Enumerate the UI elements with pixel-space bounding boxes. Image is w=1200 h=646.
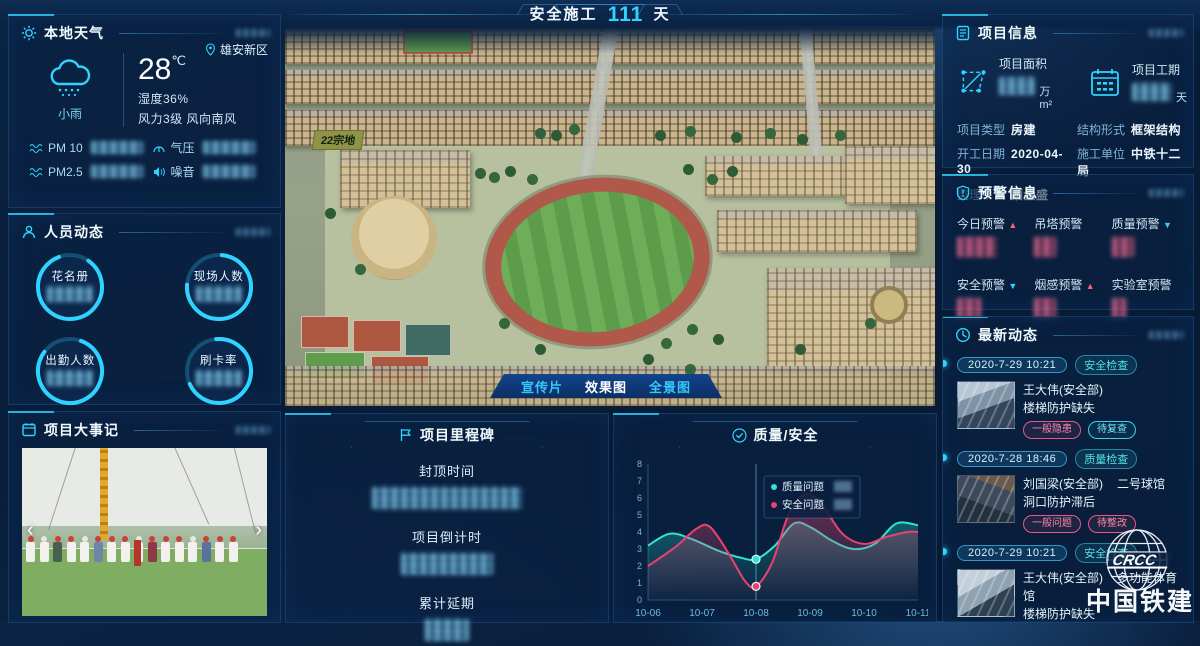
svg-text:10-09: 10-09 <box>797 608 823 619</box>
weather-panel: 本地天气 雄安新区 小雨 28℃ 湿度36% 风力3级 风向南风 PM 10 <box>8 14 281 208</box>
field-structure-type: 结构形式框架结构 <box>1077 121 1187 138</box>
update-date: 2020-7-29 10:21 <box>957 545 1067 561</box>
view-button-render[interactable]: 效果图 <box>585 377 627 396</box>
photo-calendar-icon <box>21 422 37 438</box>
tag-hazard: 一般隐患 <box>1023 421 1081 439</box>
blurred-value <box>47 286 93 302</box>
update-person: 王大伟(安全部) <box>1023 383 1103 397</box>
svg-text:10-10: 10-10 <box>851 608 877 619</box>
svg-text:5: 5 <box>637 510 642 520</box>
svg-text:1: 1 <box>637 578 642 588</box>
stat-ring-attendance: 出勤人数 <box>33 334 107 408</box>
tag-issue: 一般问题 <box>1023 515 1081 533</box>
blurred-value <box>1112 237 1134 257</box>
event-photo: ‹ › <box>22 448 267 616</box>
update-date: 2020-7-29 10:21 <box>957 357 1067 373</box>
blurred-value <box>401 553 493 575</box>
warning-today: 今日预警 ▲ <box>957 215 1030 262</box>
header-blur-stamp <box>236 29 270 37</box>
milestone-title: 项目里程碑 <box>420 425 495 445</box>
safe-construction-label: 安全施工 <box>529 6 597 23</box>
blurred-value <box>1132 83 1172 101</box>
blurred-value <box>1112 298 1126 318</box>
blurred-value <box>196 370 242 386</box>
scene-haze <box>285 28 935 54</box>
quality-safety-panel: 质量/安全 01234567810-0610-0710-0810-0910-10… <box>613 413 937 623</box>
stat-ring-swipe-rate: 刷卡率 <box>182 334 256 408</box>
divider <box>123 53 124 127</box>
update-date: 2020-7-28 18:46 <box>957 451 1067 467</box>
area-icon <box>957 65 990 101</box>
alarm-shield-icon <box>955 185 971 201</box>
stat-project-area: 项目面积 万m² <box>957 55 1061 111</box>
svg-text:7: 7 <box>637 476 642 486</box>
tag-recheck: 待复查 <box>1088 421 1136 439</box>
blurred-value <box>1034 298 1056 318</box>
metric-pm10: PM 10 <box>29 139 148 156</box>
ring-label: 现场人数 <box>182 268 256 284</box>
svg-text:10-07: 10-07 <box>689 608 715 619</box>
trend-down-icon: ▼ <box>1163 220 1172 230</box>
svg-text:安全问题: 安全问题 <box>782 498 824 511</box>
update-location: 二号球馆 <box>1117 477 1165 491</box>
events-panel: 项目大事记 ‹ › <box>8 411 281 623</box>
location-label: 雄安新区 <box>220 41 268 58</box>
weather-title: 本地天气 <box>44 23 104 43</box>
weather-condition: 小雨 <box>31 105 109 122</box>
stat-ring-onsite: 现场人数 <box>182 250 256 324</box>
milestone-label: 累计延期 <box>286 593 608 612</box>
clock-icon <box>955 327 971 343</box>
basketball-court <box>353 320 401 352</box>
speaker-icon <box>152 166 166 178</box>
crane-cable <box>172 448 210 524</box>
blurred-value <box>196 286 242 302</box>
wind: 风力3级 风向南风 <box>138 110 237 127</box>
milestone-countdown: 项目倒计时 <box>286 527 608 580</box>
trend-up-icon: ▲ <box>1008 220 1017 230</box>
blurred-value <box>91 165 143 178</box>
svg-text:10-11: 10-11 <box>906 608 928 619</box>
stat-ring-roster: 花名册 <box>33 250 107 324</box>
person-icon <box>21 224 37 240</box>
blurred-value <box>203 165 255 178</box>
header-blur-stamp <box>236 228 270 236</box>
chart-title: 质量/安全 <box>754 425 819 445</box>
warnings-panel: 预警信息 今日预警 ▲ 吊塔预警 质量预警 ▼ 安全预警 ▼ 烟感预警 ▲ 实验… <box>942 174 1194 310</box>
update-thumbnail <box>957 381 1015 429</box>
school-building <box>717 210 917 252</box>
trees <box>535 128 546 139</box>
crane <box>100 448 108 540</box>
blurred-value <box>372 487 522 509</box>
svg-text:3: 3 <box>637 544 642 554</box>
personnel-title: 人员动态 <box>44 222 104 242</box>
rain-cloud-icon <box>44 58 96 98</box>
crcc-name: 中国铁建 <box>1086 588 1194 616</box>
update-category: 安全检查 <box>1075 355 1137 375</box>
update-item[interactable]: 2020-7-28 18:46 质量检查 刘国梁(安全部)二号球馆 洞口防护滞后… <box>957 449 1187 533</box>
group-of-people <box>26 536 238 580</box>
update-issue: 洞口防护滞后 <box>1023 493 1165 511</box>
ring-label: 出勤人数 <box>33 352 107 368</box>
warnings-title: 预警信息 <box>978 183 1038 203</box>
location-pin-icon <box>205 43 216 56</box>
header-line <box>1053 335 1136 336</box>
update-thumbnail <box>957 475 1015 523</box>
stat-unit: 万m² <box>1039 83 1061 111</box>
blurred-value <box>203 141 255 154</box>
blurred-value <box>425 619 469 641</box>
milestone-label: 项目倒计时 <box>286 527 608 546</box>
temperature: 28℃ <box>138 53 237 87</box>
ring-label: 花名册 <box>33 268 107 284</box>
crcc-logo: CRCC 中国铁建 <box>1078 526 1196 618</box>
header-line <box>119 232 223 233</box>
project-info-title: 项目信息 <box>978 23 1038 43</box>
building-row <box>285 110 935 146</box>
blurred-value <box>47 370 93 386</box>
view-switcher: 宣传片 效果图 全景图 <box>490 374 722 398</box>
svg-text:4: 4 <box>637 527 642 537</box>
svg-text:2: 2 <box>637 561 642 571</box>
document-icon <box>955 25 971 41</box>
trend-down-icon: ▼ <box>1008 281 1017 291</box>
crane-cable <box>48 448 77 530</box>
metric-noise: 噪音 <box>152 163 271 180</box>
apartment-block <box>845 146 935 204</box>
temperature-unit: ℃ <box>171 53 186 68</box>
updates-title: 最新动态 <box>978 325 1038 345</box>
stat-label: 项目面积 <box>999 57 1047 71</box>
metric-pressure: 气压 <box>152 139 271 156</box>
flag-icon <box>399 428 413 442</box>
stat-project-duration: 项目工期 天 <box>1087 55 1187 111</box>
header-line <box>134 430 223 431</box>
svg-text:0: 0 <box>637 595 642 605</box>
stat-label: 项目工期 <box>1132 63 1180 77</box>
circular-plaza <box>351 196 437 280</box>
svg-text:10-08: 10-08 <box>743 608 769 619</box>
location-badge: 雄安新区 <box>205 41 268 58</box>
warning-quality: 质量预警 ▼ <box>1112 215 1185 262</box>
update-issue: 楼梯防护缺失 <box>1023 399 1136 417</box>
view-button-panorama[interactable]: 全景图 <box>649 377 691 396</box>
humidity: 湿度36% <box>138 90 237 107</box>
blurred-value <box>1034 237 1056 257</box>
sports-court <box>405 324 451 356</box>
update-category: 质量检查 <box>1075 449 1137 469</box>
carousel-prev-arrow[interactable]: ‹ <box>27 520 34 540</box>
header-line <box>119 33 223 34</box>
site-3d-render: 22宗地 宣传片 效果图 全景图 <box>285 28 935 406</box>
stat-unit: 天 <box>1176 89 1187 105</box>
crcc-abbr: CRCC <box>1111 552 1159 569</box>
update-thumbnail <box>957 569 1015 617</box>
personnel-panel: 人员动态 花名册 现场人数 出勤人数 刷卡率 <box>8 213 281 405</box>
events-title: 项目大事记 <box>44 420 119 440</box>
red-sign <box>134 540 141 566</box>
basketball-court <box>301 316 349 348</box>
view-button-promo[interactable]: 宣传片 <box>521 377 563 396</box>
update-item[interactable]: 2020-7-29 10:21 安全检查 王大伟(安全部) 楼梯防护缺失 一般隐… <box>957 355 1187 439</box>
quality-safety-chart[interactable]: 01234567810-0610-0710-0810-0910-1010-11质… <box>620 450 932 635</box>
track-infield <box>494 182 701 341</box>
crane-cable <box>233 448 256 533</box>
shield-check-icon <box>732 428 747 443</box>
days-unit: 天 <box>654 6 671 23</box>
blurred-value <box>91 141 143 154</box>
milestone-label: 封顶时间 <box>286 461 608 480</box>
milestone-topping-time: 封顶时间 <box>286 461 608 514</box>
gauge-icon <box>152 142 166 154</box>
roof-emblem <box>870 286 908 324</box>
header-line <box>1053 33 1136 34</box>
header-blur-stamp <box>1149 189 1183 197</box>
svg-text:质量问题: 质量问题 <box>782 480 824 493</box>
plot-label: 22宗地 <box>312 130 365 150</box>
project-info-panel: 项目信息 项目面积 万m² 项目工期 天 项目类型房建 结构形式框架结构 开工日 <box>942 14 1194 168</box>
milestone-panel: 项目里程碑 封顶时间 项目倒计时 累计延期 <box>285 413 609 623</box>
carousel-next-arrow[interactable]: › <box>255 520 262 540</box>
air-wave-icon <box>29 142 43 154</box>
blurred-value <box>957 237 997 257</box>
trees <box>475 168 486 179</box>
metric-pm25: PM2.5 <box>29 163 148 180</box>
milestone-delay: 累计延期 <box>286 593 608 646</box>
header-blur-stamp <box>1149 331 1183 339</box>
header-line <box>1053 193 1136 194</box>
blurred-value <box>957 298 981 318</box>
air-wave-icon <box>29 166 43 178</box>
ring-label: 刷卡率 <box>182 352 256 368</box>
warning-crane: 吊塔预警 <box>1034 215 1107 262</box>
svg-text:6: 6 <box>637 493 642 503</box>
blurred-value <box>999 77 1035 95</box>
update-person: 刘国梁(安全部) <box>1023 477 1103 491</box>
field-project-type: 项目类型房建 <box>957 121 1075 138</box>
svg-text:8: 8 <box>637 459 642 469</box>
trend-up-icon: ▲ <box>1086 281 1095 291</box>
gymnasium-building <box>767 268 935 370</box>
svg-text:10-06: 10-06 <box>635 608 661 619</box>
header-blur-stamp <box>1149 29 1183 37</box>
calendar-icon <box>1087 65 1123 101</box>
safe-days-count: 111 <box>604 3 648 26</box>
header-blur-stamp <box>236 426 270 434</box>
sun-icon <box>21 25 37 41</box>
